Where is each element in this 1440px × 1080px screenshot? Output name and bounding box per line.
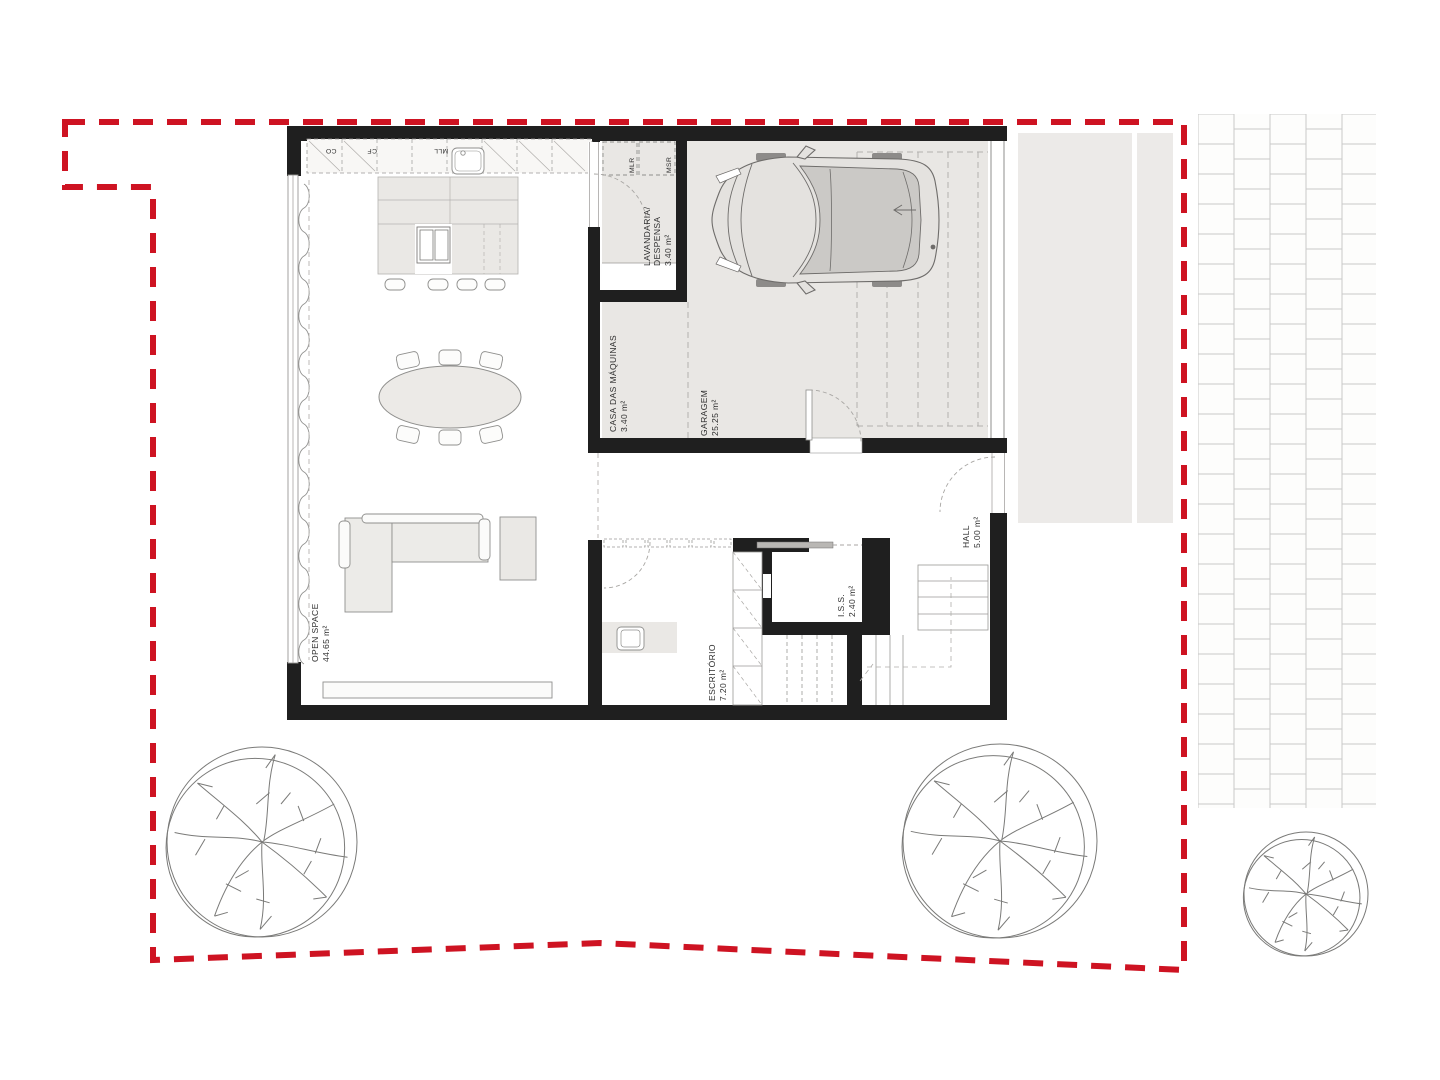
tree-right-small: [1243, 832, 1368, 956]
bar-stools: [385, 279, 505, 290]
label-open-space-area: 44.65 m²: [321, 625, 331, 662]
label-washer: MLR: [629, 157, 636, 173]
wall-iss-shaft: [862, 538, 890, 628]
car: [712, 146, 939, 294]
wall-garage-bottom-right: [862, 438, 1007, 453]
label-cabinet-mll: MLL: [434, 147, 448, 154]
label-escritorio-area: 7.20 m²: [718, 669, 728, 701]
label-iss: I.S.S.: [836, 594, 846, 617]
label-lavandaria-area: 3.40 m²: [663, 234, 673, 266]
label-casa-maquinas: CASA DAS MÁQUINAS: [608, 335, 618, 432]
label-escritorio: ESCRITÓRIO: [707, 644, 717, 701]
wall-laundry-machine-divider: [588, 290, 687, 302]
driveway-slab-large: [1018, 133, 1132, 523]
wall-laundry-right: [676, 140, 687, 290]
island-appliance: [417, 227, 450, 263]
label-garagem-area: 25.25 m²: [710, 399, 720, 436]
label-cabinet-cf: CF: [367, 147, 377, 154]
dining-table: [379, 366, 521, 428]
driveway-slab-small: [1137, 133, 1173, 523]
wall-laundry-left: [588, 227, 600, 453]
label-hall-area: 5.00 m²: [972, 516, 982, 548]
wall-left-top: [287, 126, 301, 176]
wall-right-lower: [990, 513, 1007, 720]
sofa-chaise: [345, 518, 392, 612]
garage-door: [988, 141, 1007, 438]
front-door: [940, 453, 1007, 513]
curtain-wavy-line: [299, 184, 310, 664]
wall-office-left: [588, 540, 602, 705]
tree-middle: [902, 744, 1097, 938]
kitchen-sink: [452, 148, 484, 174]
label-iss-area: 2.40 m²: [847, 585, 857, 617]
driveway-slabs: [1018, 133, 1173, 523]
site-plan-page: OPEN SPACE 44.65 m² LAVANDARIA/ DESPENSA…: [0, 0, 1440, 1080]
wall-garage-bottom-left: [588, 438, 810, 453]
label-garagem: GARAGEM: [699, 390, 709, 436]
office-desk: [602, 622, 677, 653]
window-left: [288, 175, 298, 663]
label-open-space: OPEN SPACE: [310, 603, 320, 662]
label-lavandaria-2: DESPENSA: [652, 217, 662, 267]
label-casa-maquinas-area: 3.40 m²: [619, 400, 629, 432]
side-table: [500, 517, 536, 580]
label-hall: HALL: [961, 525, 971, 548]
label-cabinet-co: CO: [326, 147, 337, 154]
sofa-arm-left: [339, 521, 350, 568]
tree-left: [166, 747, 357, 937]
label-lavandaria-1: LAVANDARIA/: [642, 206, 652, 266]
tv-console: [323, 682, 552, 698]
floor-plan-canvas: OPEN SPACE 44.65 m² LAVANDARIA/ DESPENSA…: [0, 0, 1440, 1080]
sofa-arm-right: [479, 519, 490, 560]
corridor-cabinet-row: [604, 539, 731, 547]
sofa-seat: [392, 523, 488, 562]
wall-bottom: [287, 705, 1007, 720]
sofa: [339, 514, 490, 612]
sofa-back: [362, 514, 483, 523]
kitchen-island: [378, 177, 518, 274]
office-door-arc: [604, 542, 650, 588]
label-dryer: MSR: [666, 157, 673, 173]
office-closet: [733, 552, 762, 705]
car-antenna-dot: [931, 245, 936, 250]
wall-stair-divider: [847, 635, 862, 705]
iss-door: [757, 542, 862, 548]
wall-iss-bottom: [762, 622, 890, 635]
kitchen-cabinets: [307, 139, 592, 173]
brick-paving: [1198, 114, 1376, 808]
iss-wall-niche: [763, 574, 771, 598]
